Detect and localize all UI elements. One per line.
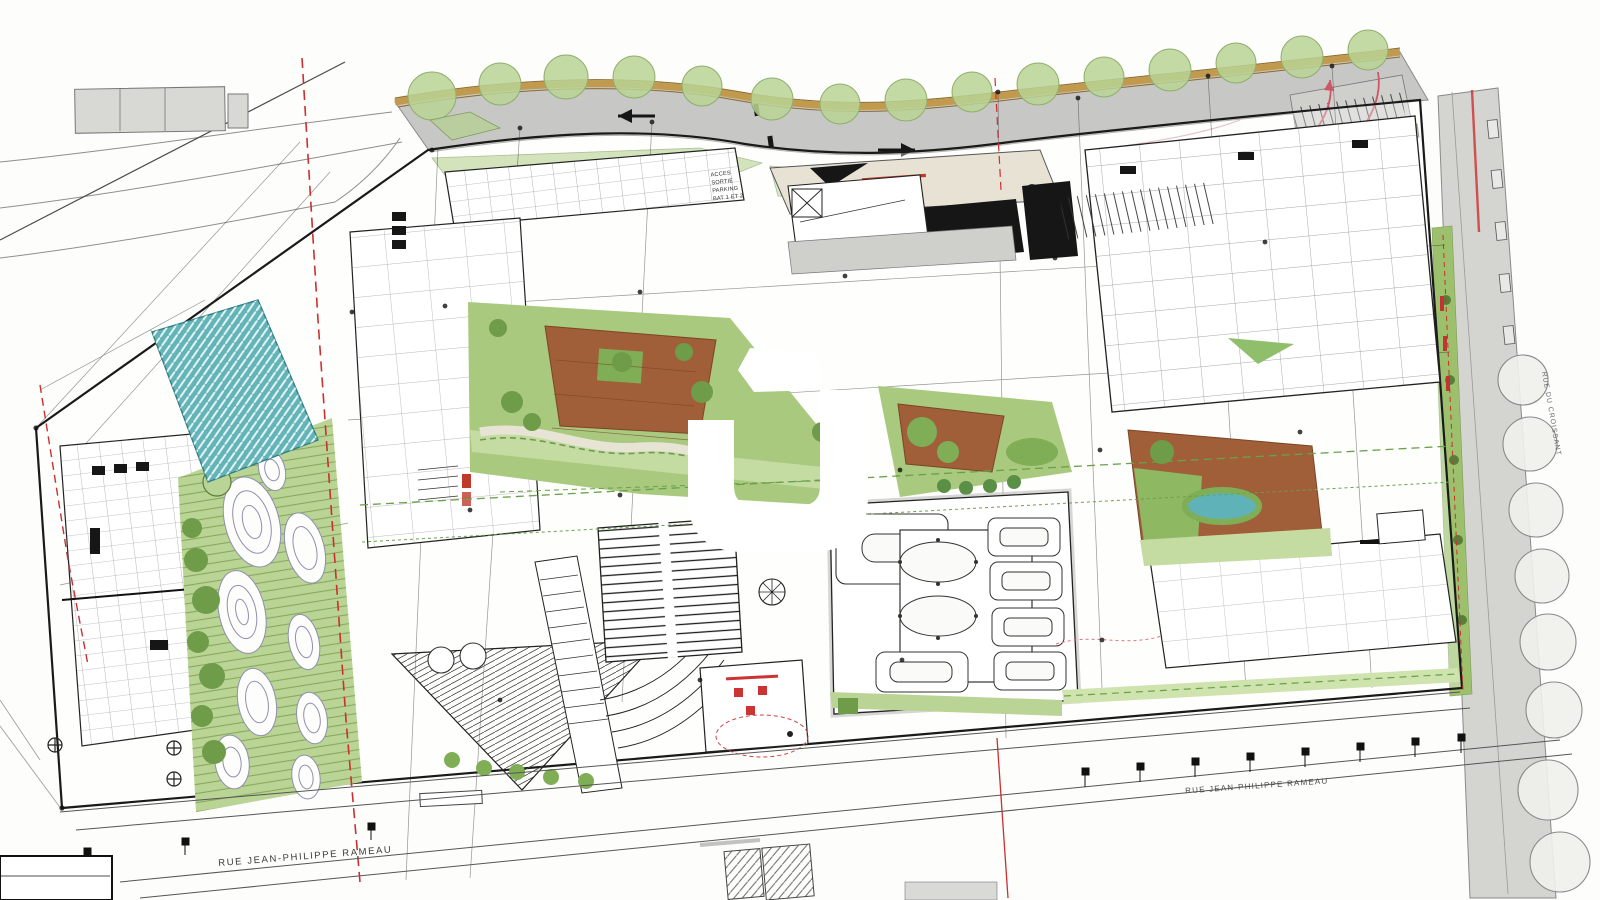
crosswalk: [724, 844, 814, 900]
corner-box: [0, 856, 112, 900]
neighbor-buildings: [75, 87, 248, 134]
building-center-bottom: [700, 660, 808, 757]
street-label-right: RUE JEAN-PHILIPPE RAMEAU: [1185, 776, 1329, 795]
buildings-top-center: [770, 150, 1078, 274]
right-road: [1432, 88, 1590, 898]
pond: [1185, 490, 1259, 522]
site-plan-drawing: RUE JEAN-PHILIPPE RAMEAU RUE JEAN-PHILIP…: [0, 0, 1600, 900]
site-plan: RUE JEAN-PHILIPPE RAMEAU RUE JEAN-PHILIP…: [0, 0, 1600, 900]
street-label-left: RUE JEAN-PHILIPPE RAMEAU: [218, 844, 393, 869]
